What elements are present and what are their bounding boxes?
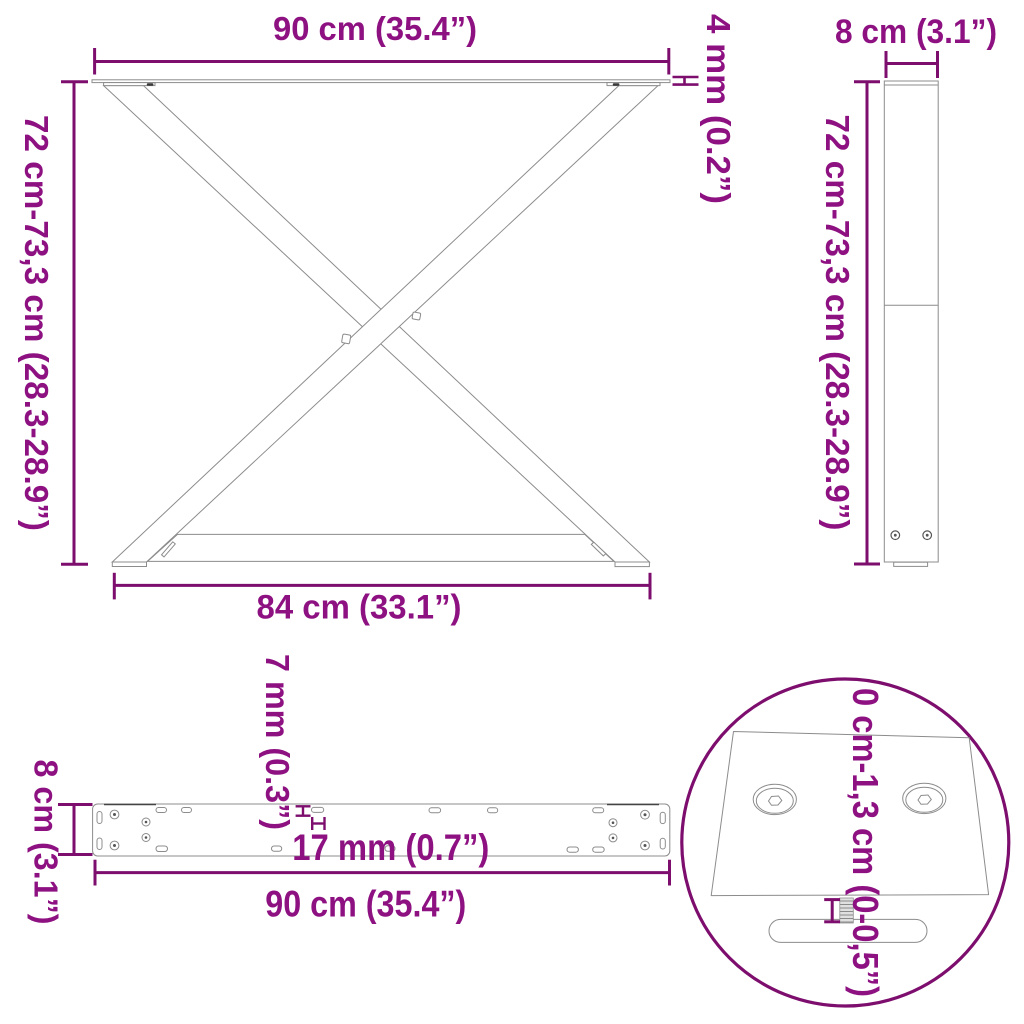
svg-text:90 cm (35.4”): 90 cm (35.4”) (273, 10, 477, 47)
svg-text:0 cm-1,3 cm (0-0,5”): 0 cm-1,3 cm (0-0,5”) (845, 688, 886, 997)
svg-text:4 mm (0.2”): 4 mm (0.2”) (700, 14, 737, 204)
svg-text:84 cm (33.1”): 84 cm (33.1”) (257, 589, 462, 627)
svg-text:7 mm (0.3”): 7 mm (0.3”) (259, 654, 296, 830)
svg-text:8 cm (3.1”): 8 cm (3.1”) (28, 760, 65, 925)
svg-text:72 cm-73,3 cm (28.3-28.9”): 72 cm-73,3 cm (28.3-28.9”) (18, 115, 55, 531)
svg-text:72 cm-73,3 cm (28.3-28.9”): 72 cm-73,3 cm (28.3-28.9”) (819, 115, 856, 531)
svg-text:17 mm (0.7”): 17 mm (0.7”) (292, 827, 489, 868)
svg-text:90 cm (35.4”): 90 cm (35.4”) (265, 884, 466, 925)
svg-text:8 cm (3.1”): 8 cm (3.1”) (835, 13, 997, 51)
